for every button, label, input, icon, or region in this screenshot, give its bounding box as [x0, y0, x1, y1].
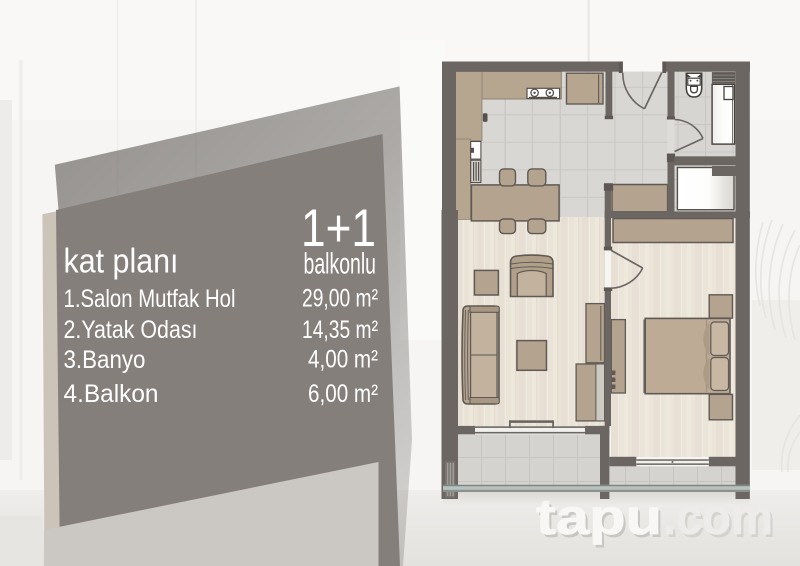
svg-text:29,00 m²: 29,00 m² [302, 285, 378, 313]
svg-text:2.Yatak Odası: 2.Yatak Odası [64, 316, 198, 344]
svg-text:14,35 m²: 14,35 m² [302, 316, 378, 344]
svg-text:6,00 m²: 6,00 m² [308, 380, 378, 408]
svg-text:4.Balkon: 4.Balkon [64, 380, 159, 408]
svg-text:balkonlu: balkonlu [304, 248, 377, 281]
svg-text:3.Banyo: 3.Banyo [64, 346, 146, 374]
svg-text:4,00 m²: 4,00 m² [308, 346, 378, 374]
svg-text:tapu: tapu [536, 489, 662, 545]
svg-text:1.Salon Mutfak Hol: 1.Salon Mutfak Hol [64, 285, 236, 313]
svg-text:.com: .com [663, 489, 773, 545]
svg-text:kat planı: kat planı [64, 243, 179, 281]
